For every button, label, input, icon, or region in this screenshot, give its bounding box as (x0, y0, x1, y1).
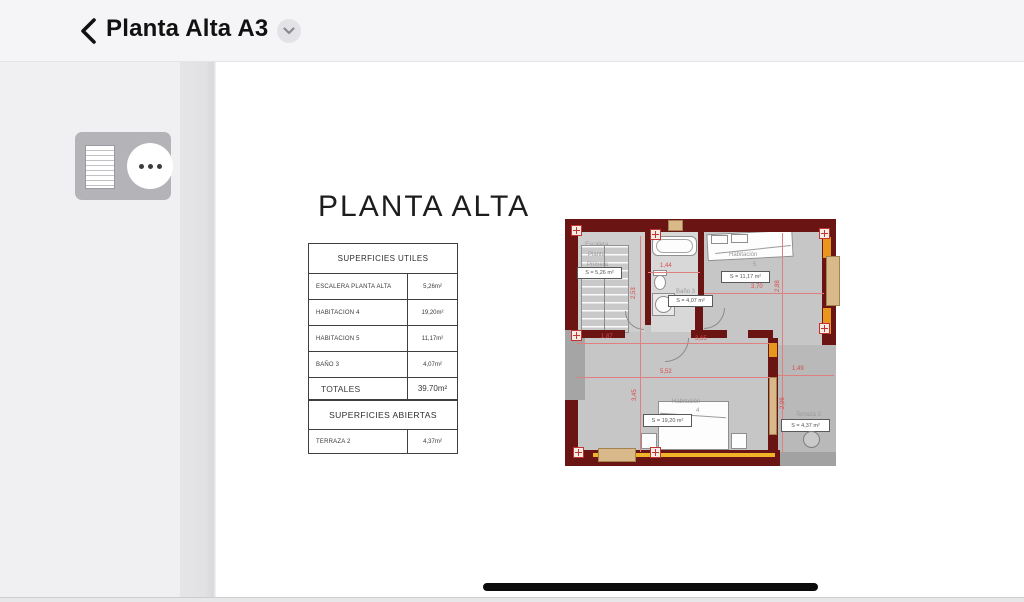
row-label: BAÑO 3 (309, 352, 408, 377)
table-row-totals: TOTALES 39.70m² (309, 378, 457, 400)
window-frame-right-top (823, 237, 831, 258)
dim-1-87: 1,87 (601, 334, 613, 340)
toilet-icon (654, 275, 666, 290)
bathtub-basin (656, 239, 693, 253)
chevron-down-icon (283, 27, 295, 35)
area-box-stairs: S = 5,26 m² (577, 267, 622, 279)
survey-marker-icon (571, 225, 582, 236)
row-label: TERRAZA 2 (309, 430, 408, 453)
row-label: ESCALERA PLANTA ALTA (309, 274, 408, 299)
window-sill-bottom (598, 448, 636, 462)
thumbnail-sidebar (0, 62, 180, 597)
table-row: TERRAZA 2 4,37m² (309, 430, 457, 453)
page-title: PLANTA ALTA (318, 190, 530, 224)
table-header-abiertas: SUPERFICIES ABIERTAS (309, 400, 457, 430)
row-value: 4,37m² (408, 430, 457, 453)
dim-2-88: 2,88 (775, 280, 781, 292)
wall-top (565, 219, 836, 232)
label-hab5-num: 5 (753, 262, 756, 268)
survey-marker-icon (819, 228, 830, 239)
sidebar-divider (180, 62, 216, 597)
row-value: 11,17m² (408, 326, 457, 351)
dim-3-45: 3,45 (632, 389, 638, 401)
dimension-line (704, 293, 824, 294)
dimension-line (778, 375, 834, 376)
thumbnail-table-preview (85, 145, 115, 189)
terraza-table-icon (803, 431, 820, 448)
document-title: Planta Alta A3 (106, 15, 268, 43)
area-box-hab5: S = 11,17 m² (721, 271, 770, 283)
table-row: BAÑO 3 4,07m² (309, 352, 457, 378)
table-header-utiles: SUPERFICIES UTILES (309, 244, 457, 274)
pillow (731, 234, 748, 243)
dimension-line (640, 236, 641, 452)
totals-label: TOTALES (309, 378, 408, 399)
dimension-line (577, 377, 770, 378)
dimension-line (577, 343, 770, 344)
row-value: 19,20m² (408, 300, 457, 325)
survey-marker-icon (650, 447, 661, 458)
stairs (581, 245, 629, 333)
plan-terraza-edge (780, 452, 836, 466)
stairs-rail (604, 245, 605, 333)
dim-3-65: 3,65 (695, 336, 707, 342)
dimension-line (648, 272, 700, 273)
dim-2-96: 2,96 (780, 397, 786, 409)
survey-marker-icon (650, 229, 661, 240)
row-label: HABITACION 5 (309, 326, 408, 351)
dim-5-52: 5,52 (660, 369, 672, 375)
survey-marker-icon (571, 330, 582, 341)
dim-1-49: 1,49 (792, 366, 804, 372)
label-hab5: Habitación (729, 252, 757, 258)
floor-plan: 1,44 2,53 1,87 3,65 5,52 3,45 3,70 2,88 … (565, 219, 836, 466)
survey-marker-icon (573, 447, 584, 458)
wall-left-lower (565, 400, 578, 452)
window-sill-right (826, 256, 840, 306)
table-row: HABITACION 5 11,17m² (309, 326, 457, 352)
area-box-bano3: S = 4,07 m² (668, 295, 713, 307)
document-page: PLANTA ALTA SUPERFICIES UTILES ESCALERA … (216, 62, 1024, 597)
dim-1-44: 1,44 (660, 263, 672, 269)
wall-bath-left (645, 232, 651, 325)
row-label: HABITACION 4 (309, 300, 408, 325)
label-hab4-num: 4 (696, 408, 699, 414)
ellipsis-loading-icon (127, 143, 173, 189)
row-value: 5,26m² (408, 274, 457, 299)
title-bar: Planta Alta A3 (0, 0, 1024, 62)
page-footer-bar (483, 583, 818, 591)
area-box-terraza2: S = 4,37 m² (781, 419, 830, 432)
window-frame-terraza-top (769, 343, 777, 357)
label-escalera-2: Planta (588, 252, 605, 258)
dim-3-70: 3,70 (751, 284, 763, 290)
survey-marker-icon (819, 323, 830, 334)
totals-value: 39.70m² (408, 378, 457, 399)
door-panel-terraza (769, 377, 777, 435)
label-escalera: Escalera (585, 242, 608, 248)
table-row: HABITACION 4 19,20m² (309, 300, 457, 326)
surfaces-table: SUPERFICIES UTILES ESCALERA PLANTA ALTA … (308, 243, 458, 454)
title-dropdown-button[interactable] (277, 19, 301, 43)
label-hab4: Habitación (672, 399, 700, 405)
back-button[interactable] (76, 16, 102, 46)
wall-hall-right (748, 330, 773, 338)
row-value: 4,07m² (408, 352, 457, 377)
table-row: ESCALERA PLANTA ALTA 5,26m² (309, 274, 457, 300)
page-thumbnail[interactable] (75, 132, 171, 200)
dim-2-53: 2,53 (631, 287, 637, 299)
label-terraza2: Terraza 2 (796, 412, 821, 418)
app-window: Planta Alta A3 PLANTA ALTA SUPERFICIES U… (0, 0, 1024, 602)
nightstand (731, 433, 747, 449)
window-sill-top (668, 220, 683, 231)
area-box-hab4: S = 19,20 m² (643, 414, 692, 427)
chevron-left-icon (76, 16, 102, 46)
window-bottom-edge (0, 597, 1024, 602)
pillow (711, 235, 728, 244)
